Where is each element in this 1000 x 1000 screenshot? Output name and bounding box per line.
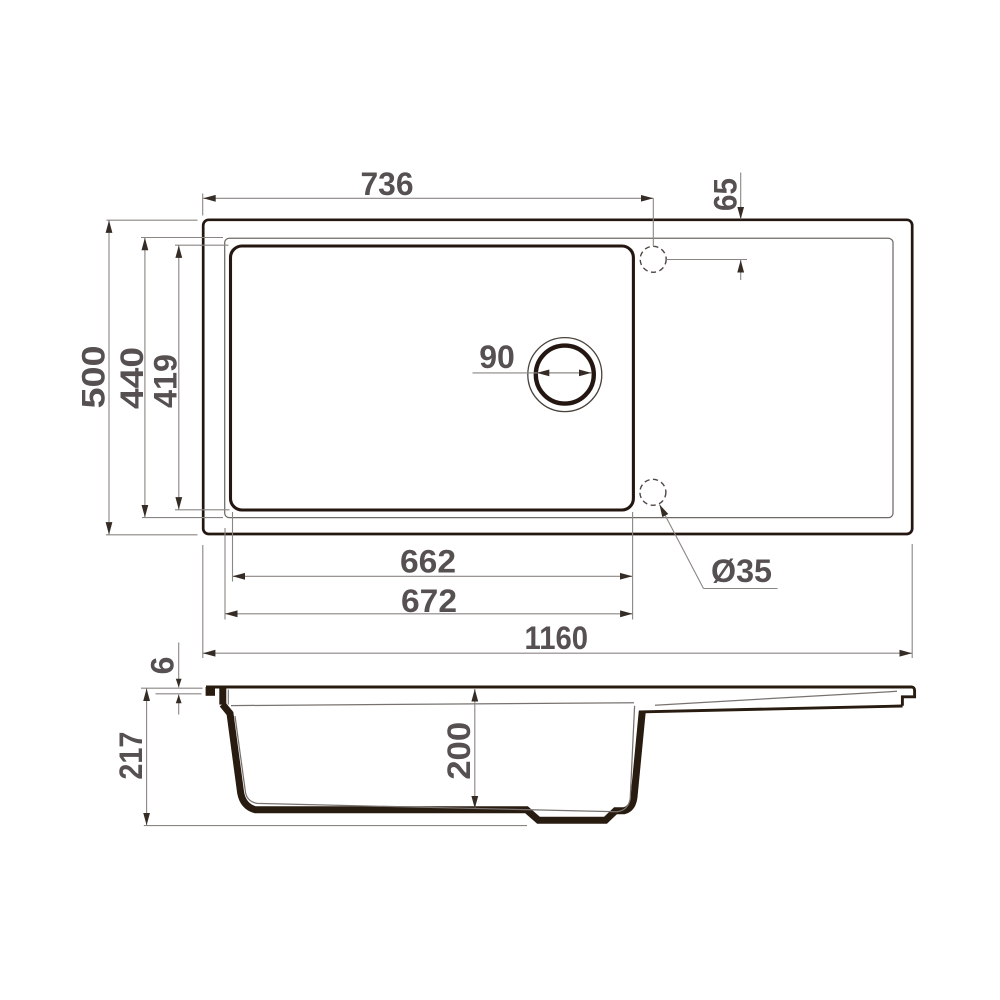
svg-text:6: 6 <box>145 657 181 675</box>
svg-text:500: 500 <box>76 346 112 409</box>
svg-text:1160: 1160 <box>525 620 589 656</box>
svg-text:200: 200 <box>441 722 477 780</box>
svg-text:90: 90 <box>479 339 515 375</box>
svg-text:217: 217 <box>113 732 149 780</box>
svg-text:419: 419 <box>148 354 184 408</box>
svg-text:65: 65 <box>708 178 744 211</box>
svg-text:736: 736 <box>361 166 414 202</box>
svg-text:Ø35: Ø35 <box>711 553 772 589</box>
svg-text:662: 662 <box>400 544 456 580</box>
svg-text:440: 440 <box>114 347 150 409</box>
svg-text:672: 672 <box>401 583 457 619</box>
